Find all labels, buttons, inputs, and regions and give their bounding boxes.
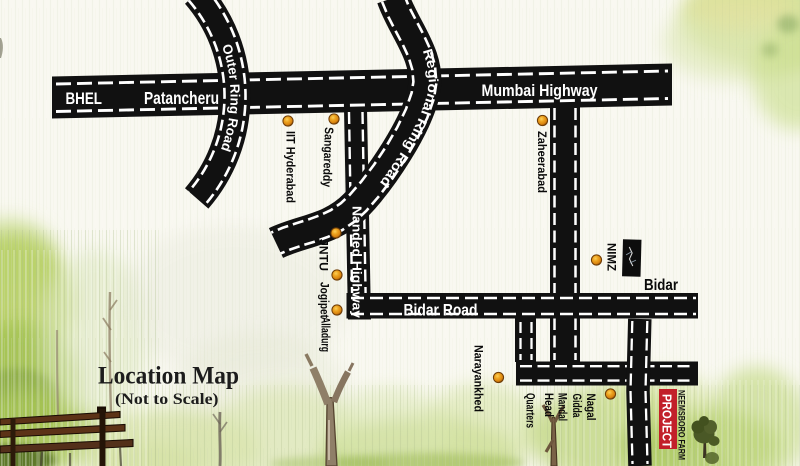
svg-text:Sangareddy: Sangareddy [320, 127, 336, 188]
svg-text:Patancheru: Patancheru [144, 88, 219, 108]
svg-text:NIMZ: NIMZ [605, 243, 619, 271]
svg-text:Nagal: Nagal [584, 394, 596, 421]
svg-text:Bidar: Bidar [644, 277, 678, 294]
svg-text:NEEMSBORO FARM: NEEMSBORO FARM [677, 390, 687, 460]
svg-text:Jogipet: Jogipet [318, 282, 330, 318]
svg-text:JNTU: JNTU [317, 239, 331, 271]
svg-text:Mumbai Highway: Mumbai Highway [482, 81, 598, 100]
svg-text:Head: Head [542, 393, 554, 417]
svg-text:Alladurg: Alladurg [319, 317, 331, 352]
svg-text:IIT Hyderabad: IIT Hyderabad [284, 131, 298, 203]
svg-text:BHEL: BHEL [66, 89, 103, 108]
svg-text:Location Map: Location Map [98, 363, 239, 390]
svg-text:Bidar Road: Bidar Road [404, 302, 478, 320]
svg-text:Mandal: Mandal [556, 393, 568, 421]
svg-text:Nanded Highway: Nanded Highway [350, 206, 365, 319]
svg-text:Quarters: Quarters [524, 393, 536, 428]
svg-text:(Not to Scale): (Not to Scale) [115, 391, 219, 408]
svg-text:Gidda: Gidda [570, 394, 582, 418]
svg-text:Zaheerabad: Zaheerabad [535, 131, 549, 193]
svg-text:PROJECT: PROJECT [660, 394, 674, 448]
svg-text:Narayankhed: Narayankhed [472, 345, 486, 412]
